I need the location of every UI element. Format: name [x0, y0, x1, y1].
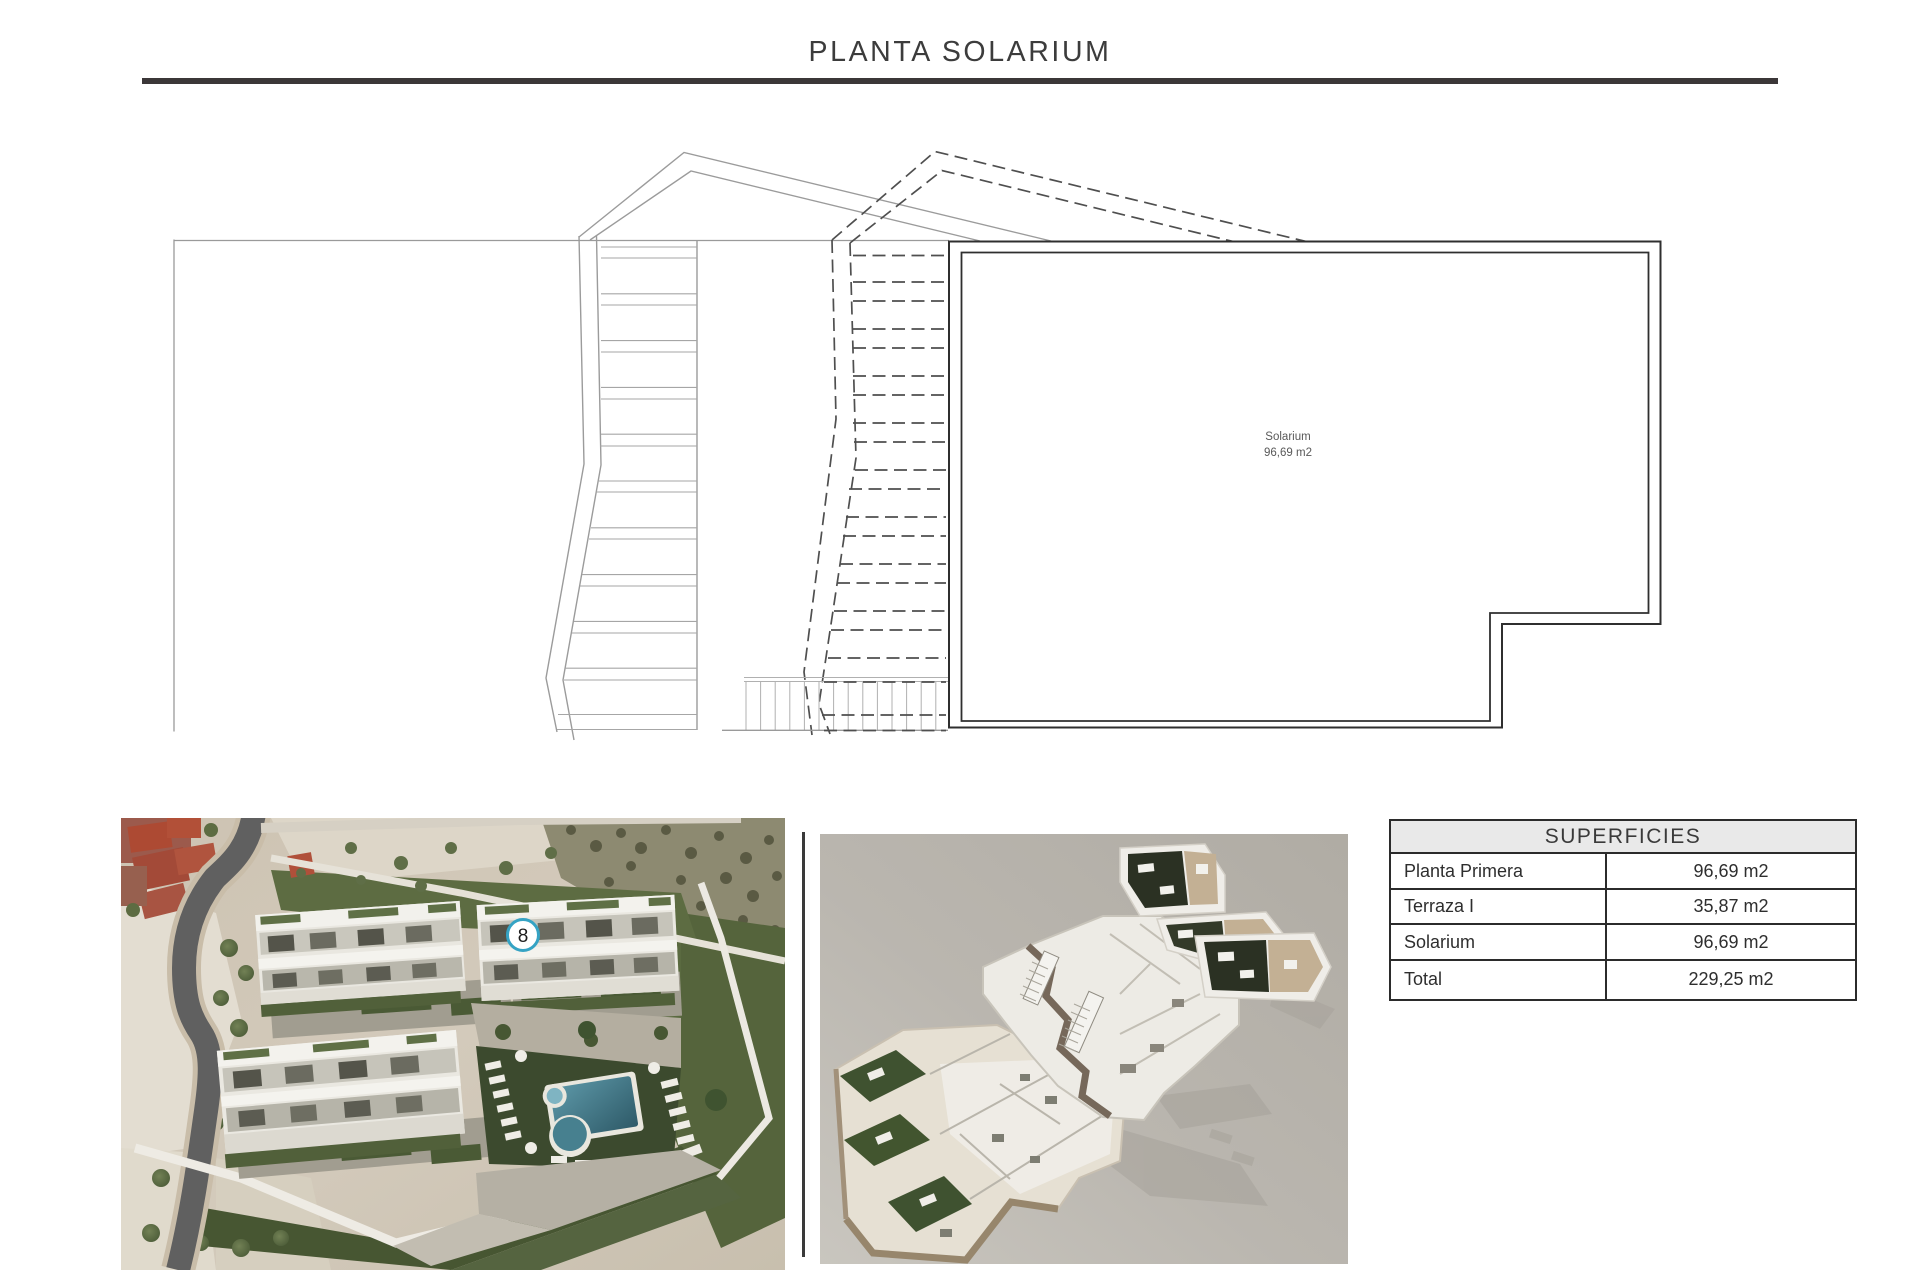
- svg-text:8: 8: [518, 926, 529, 947]
- svg-text:96,69 m2: 96,69 m2: [1264, 447, 1312, 459]
- svg-text:Solarium: Solarium: [1265, 431, 1310, 443]
